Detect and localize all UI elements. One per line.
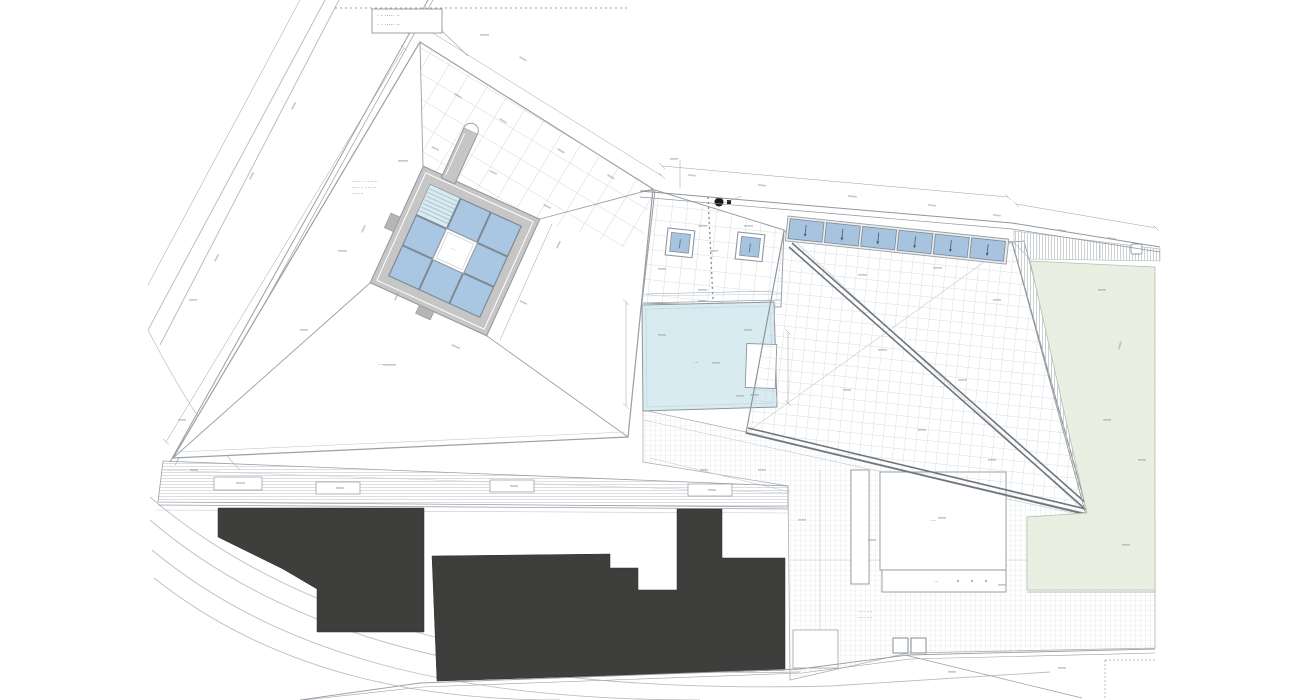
dimension-text-mark bbox=[798, 519, 806, 521]
dimension-text-mark bbox=[698, 300, 706, 302]
dimension-text-mark bbox=[1122, 544, 1130, 546]
dimension-text-mark bbox=[398, 160, 408, 162]
dimension-text-mark bbox=[868, 539, 876, 541]
dimension-text-mark bbox=[758, 469, 766, 471]
context-building-west bbox=[218, 508, 424, 632]
pool-label: ··· bbox=[694, 360, 699, 366]
dimension-text-mark bbox=[758, 184, 766, 187]
dimension-text-mark bbox=[670, 158, 678, 160]
dimension-text-mark bbox=[993, 299, 1001, 301]
dimension-text-mark bbox=[519, 56, 527, 62]
dimension-text-mark bbox=[510, 485, 518, 487]
dimension-text-mark bbox=[698, 289, 707, 291]
dimension-text-mark bbox=[190, 469, 198, 471]
survey-note-line2: · · ····· ·· bbox=[377, 22, 400, 29]
skylight-panel bbox=[788, 219, 824, 242]
dimension-text-mark bbox=[698, 225, 707, 227]
dimension-text-mark bbox=[700, 469, 708, 471]
dimension-text-mark bbox=[338, 250, 347, 252]
context-buildings bbox=[218, 508, 785, 681]
dimension-text-mark bbox=[993, 214, 1001, 217]
svg-text:····· ·· ···· ···: ····· ·· ···· ··· bbox=[352, 186, 376, 191]
band-label: ··· bbox=[934, 580, 938, 585]
dimension-text-mark bbox=[998, 584, 1006, 586]
plaza-building-band bbox=[882, 570, 1006, 592]
dimension-text-mark bbox=[178, 419, 186, 421]
plaza-label-2: ····· ···· bbox=[858, 616, 872, 621]
dimension-text-mark bbox=[236, 482, 245, 484]
dimension-text-mark bbox=[948, 671, 956, 673]
dimension-text-mark bbox=[988, 459, 996, 461]
dimension-text-mark bbox=[249, 172, 254, 180]
dimension-text-mark bbox=[1058, 667, 1066, 669]
dimension-text-mark bbox=[933, 267, 942, 269]
skylight-panel bbox=[933, 234, 969, 257]
svg-text:········: ········ bbox=[352, 192, 363, 197]
dimension-text-mark bbox=[848, 195, 857, 198]
dimension-text-mark bbox=[214, 254, 219, 262]
dimension-text-mark bbox=[928, 204, 936, 207]
dimension-text-mark bbox=[878, 349, 887, 351]
dimension-text-mark bbox=[336, 487, 344, 489]
dimension-text-mark bbox=[736, 395, 744, 397]
roof-skylight-box bbox=[665, 228, 695, 258]
plaza-lift-box bbox=[793, 630, 838, 668]
site-plan-drawing: · · ····· ·· · · ····· ·· ······ ·· ····… bbox=[0, 0, 1300, 700]
dimension-text-mark bbox=[710, 250, 718, 252]
dimension-text-mark bbox=[658, 334, 666, 336]
roof-skylight-box bbox=[735, 232, 765, 262]
svg-text:······ ·· ········: ······ ·· ········ bbox=[352, 180, 378, 185]
dimension-text-mark bbox=[708, 489, 716, 491]
dimension-text-mark bbox=[291, 102, 296, 110]
dimension-text-mark bbox=[958, 379, 967, 381]
plaza-column-strip bbox=[851, 470, 869, 584]
dimension-text-mark bbox=[688, 174, 696, 177]
dimension-text-mark bbox=[750, 394, 759, 396]
dimension-text-mark bbox=[1138, 459, 1146, 461]
chimney-marker bbox=[715, 198, 724, 207]
dimension-text-mark bbox=[938, 517, 946, 519]
dimension-text-mark bbox=[300, 329, 308, 331]
dimension-text-mark bbox=[858, 274, 867, 276]
dimension-text-mark bbox=[383, 364, 396, 366]
dimension-text-mark bbox=[1098, 289, 1106, 291]
dimension-text-mark bbox=[1103, 419, 1111, 421]
dimension-text-mark bbox=[189, 299, 197, 301]
dimension-text-mark bbox=[712, 362, 720, 364]
survey-note-line1: · · ····· ·· bbox=[377, 13, 400, 20]
plaza-label-1: ····· ···· bbox=[858, 610, 872, 615]
context-building-east bbox=[432, 509, 785, 681]
dimension-text-mark bbox=[918, 429, 926, 431]
dimension-text-mark bbox=[658, 268, 666, 270]
dimension-text-mark bbox=[744, 225, 753, 227]
dimension-text-mark bbox=[480, 34, 489, 36]
dimension-text-mark bbox=[843, 389, 851, 391]
plaza-skylight-box bbox=[911, 638, 926, 653]
building-label: ···· bbox=[930, 518, 937, 524]
plaza-skylight-box bbox=[893, 638, 908, 653]
skylight-panel bbox=[861, 226, 897, 249]
dimension-text-mark bbox=[744, 329, 752, 331]
site-plan-canvas: · · ····· ·· · · ····· ·· ······ ·· ····… bbox=[0, 0, 1300, 700]
